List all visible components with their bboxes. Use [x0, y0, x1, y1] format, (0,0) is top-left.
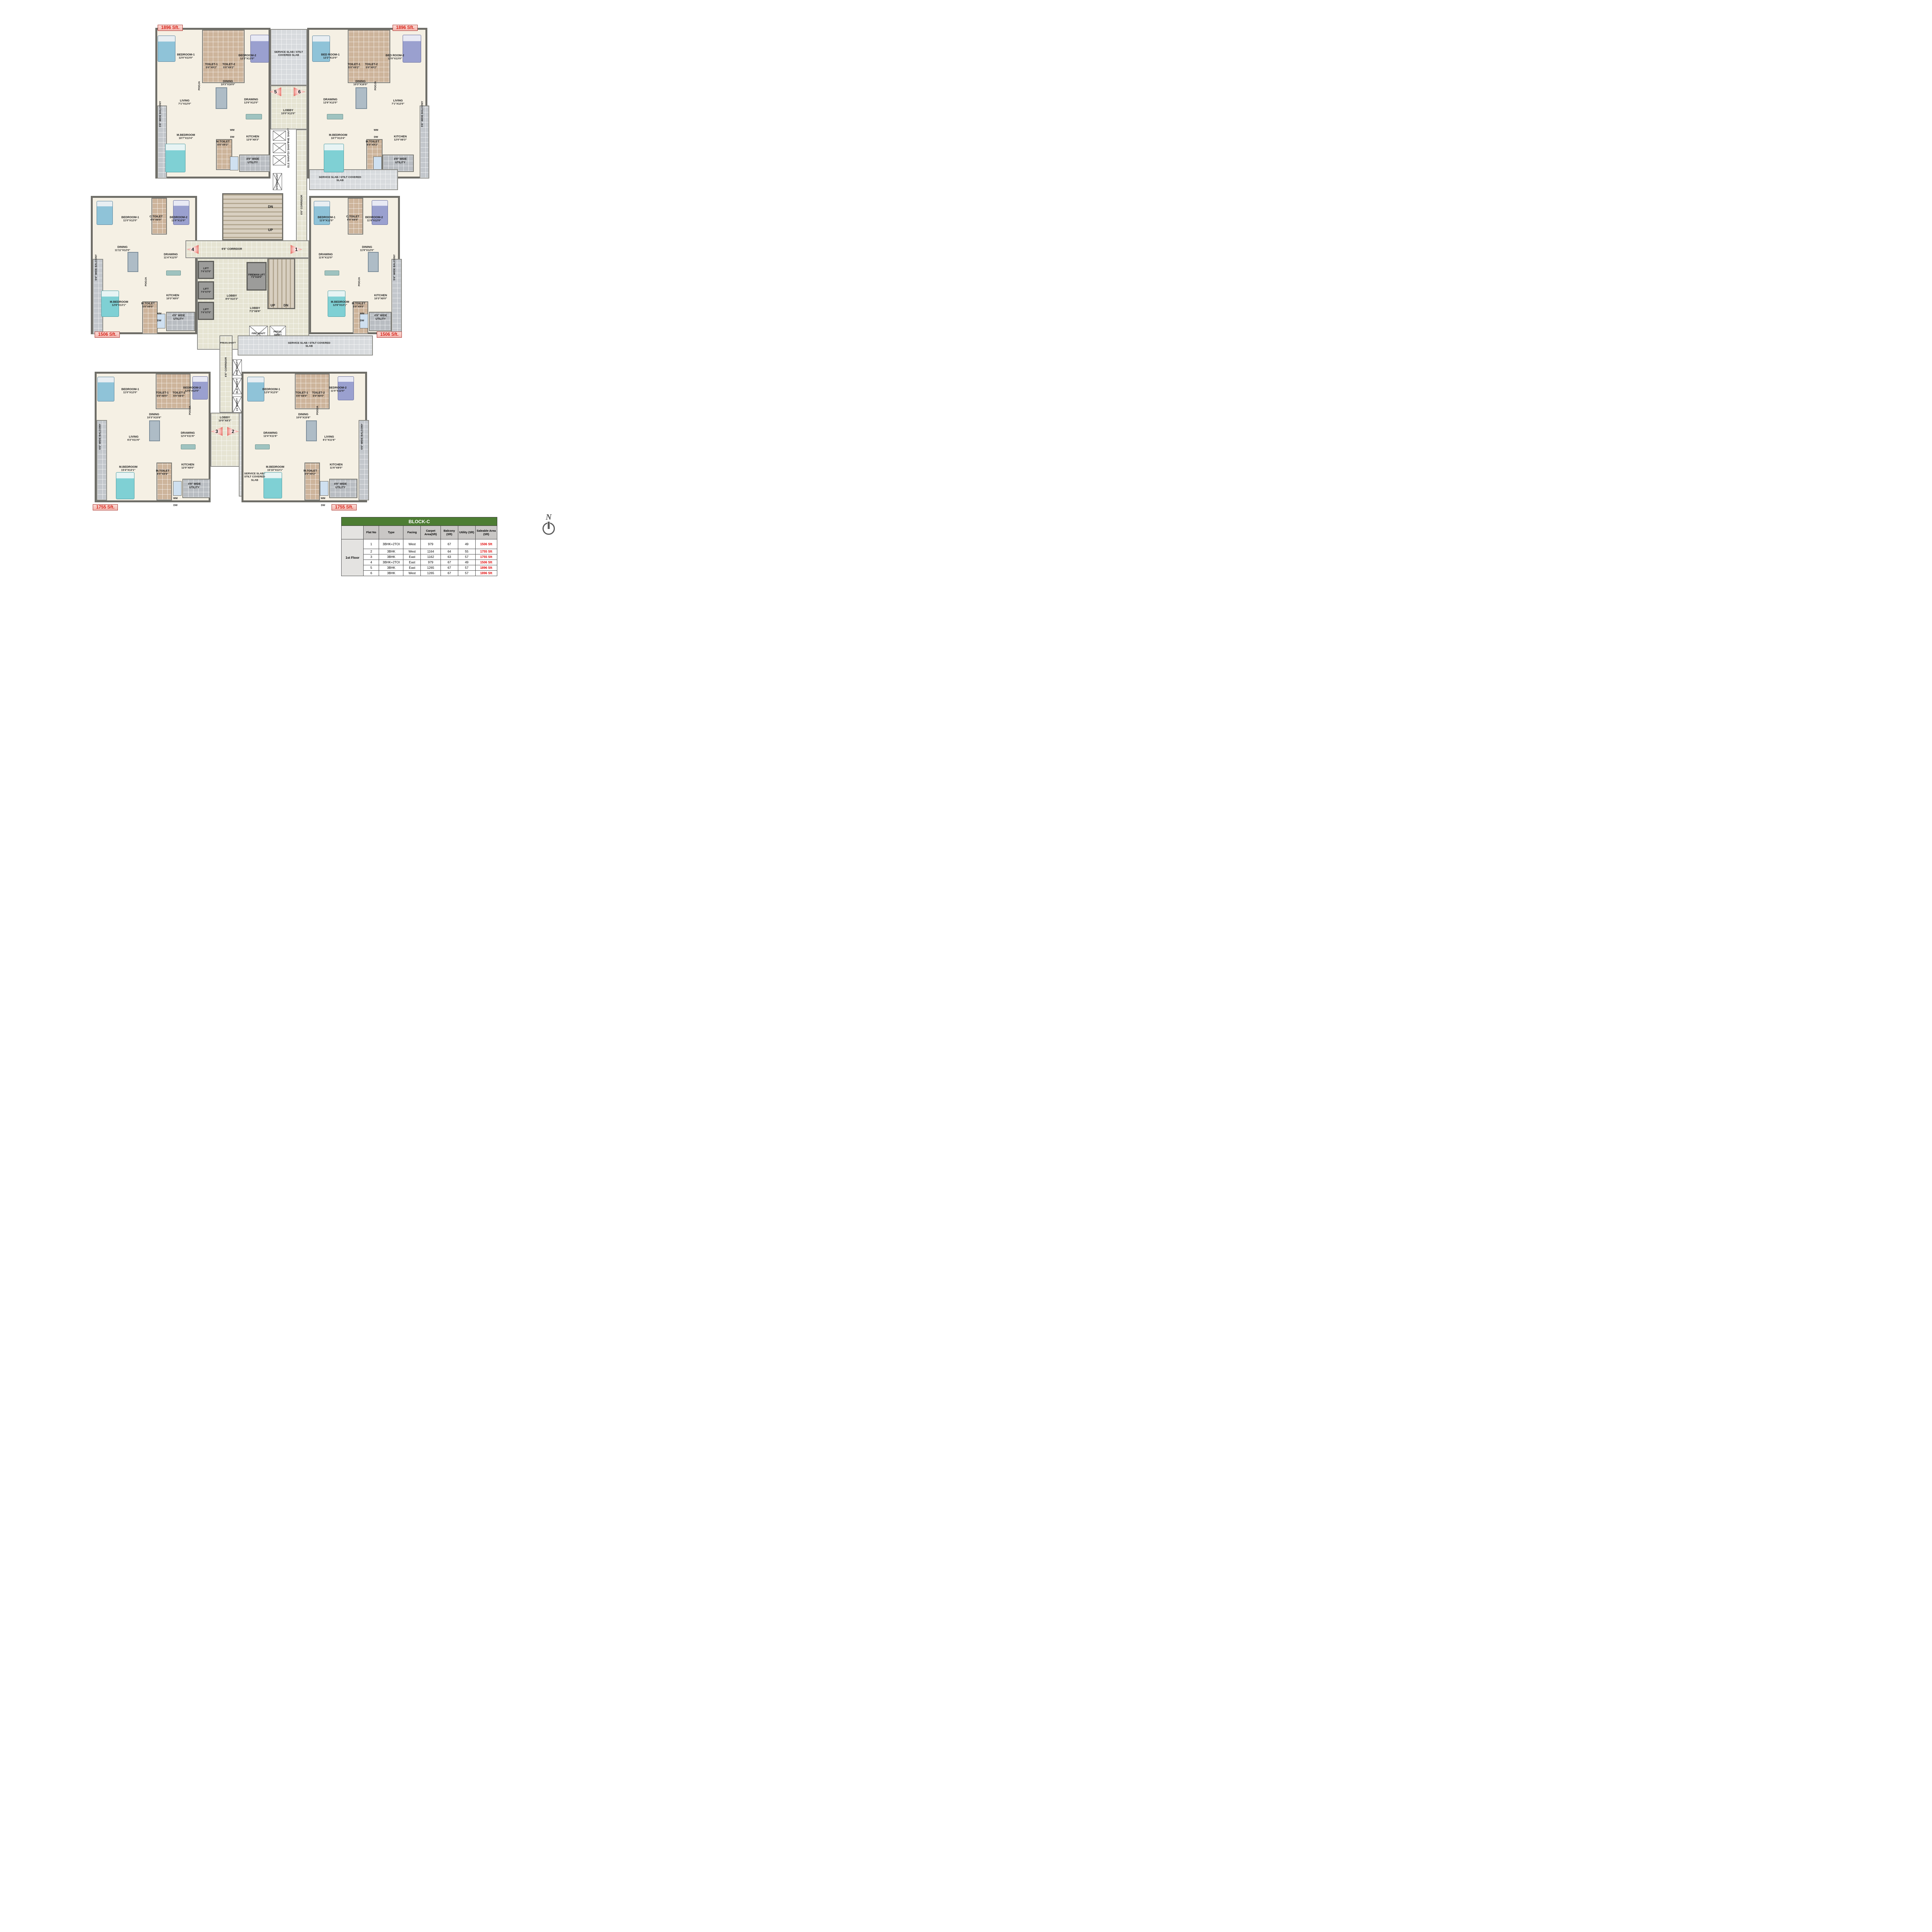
cell-balcony: 67 [440, 571, 458, 576]
room-name: KITCHEN [246, 135, 259, 139]
floor-plan-canvas: 1896 Sft. BEDROOM-112'0"X13'0" TOILET-15… [0, 0, 580, 580]
block-c-table: BLOCK-C Flat No Type Facing Carpet Area(… [341, 517, 497, 576]
wm-dw-box [230, 156, 238, 170]
floor-label: 1st Floor [342, 539, 364, 576]
press-shaft-left-label: PRESS.SHAFT [220, 342, 236, 344]
mr-dining-label: DINING11'9"X12'0" [360, 246, 374, 252]
room-name: M.TOILET [366, 140, 379, 144]
tl-toilet2-label: TOILET-25'0"X9'2" [223, 63, 235, 70]
bl-dw-label: DW [173, 504, 178, 507]
room-dims: 16'7"X13'4" [329, 137, 347, 140]
tr-mtoilet-label: M.TOILET6'0"X9'2" [366, 140, 379, 147]
room-dims: 8'0"X22'3" [225, 298, 238, 301]
room-dims: 11'0"X12'0" [365, 219, 383, 222]
room-name: M.BEDROOM [266, 466, 284, 469]
tl-wm-label: WM [230, 129, 235, 132]
lift-3-label: LIFT7'4"X7'0" [201, 308, 211, 314]
room-name: LIFT [201, 287, 211, 291]
room-name: BEDROOM-2 [170, 216, 187, 219]
room-name: C.TOILET [346, 215, 359, 219]
cell-type: 3BHK [379, 571, 403, 576]
cell-carpet: 1162 [421, 554, 440, 560]
corridor-bottom-label: 6'6" CORRIDOR [225, 357, 228, 377]
stp-exhaust-label: STP.EXHAUST [276, 173, 279, 189]
room-name: TOILET-2 [365, 63, 378, 66]
press-shaft2-label: PRESS. SHAFT [271, 331, 284, 337]
bl-kitchen-label: KITCHEN12'0"X8'0" [181, 463, 194, 470]
stairs-lower [267, 258, 295, 309]
room-dims: 12'4"X11'6" [264, 435, 278, 438]
service-slab-top-label: SERVICE SLAB / STILT COVERED SLAB [274, 51, 304, 58]
corridor-vertical-label: 6'6" CORRIDOR [301, 195, 303, 214]
room-name: LOBBY [225, 294, 238, 298]
fireman-lift-label: FIREMAN LIFT7'2"X10'0" [248, 274, 265, 279]
flat-number: 5 [274, 89, 277, 94]
ml-mbedroom-label: M.BEDROOM12'8"X13'1" [110, 301, 128, 307]
room-name: BED ROOM-1 [321, 53, 340, 57]
bl-living-label: LIVING6'2"X11'6" [128, 435, 140, 442]
room-name: DINING [296, 413, 311, 417]
room-name: M.BEDROOM [110, 301, 128, 304]
cell-saleable: 1755 Sft [475, 549, 497, 554]
lobby-bottom-label: LOBBY10'0"X8'3" [218, 416, 231, 423]
room-name: C.TOILET [150, 215, 163, 219]
tl-kitchen-label: KITCHEN12'0"X8'3" [246, 135, 259, 142]
tr-toilet1-label: TOILET-15'0"X9'2" [348, 63, 361, 70]
cell-saleable: 1755 Sft [475, 554, 497, 560]
room-dims: 10'0"X8'3" [218, 419, 231, 422]
lift-1-label: LIFT7'4"X7'0" [201, 267, 211, 273]
flat-marker-2: 2 [227, 427, 239, 436]
room-dims: 12'0"X12'0" [183, 389, 201, 393]
ml-bedroom2-label: BEDROOM-211'0"X12'0" [170, 216, 187, 223]
ele-shaft-box [273, 155, 286, 165]
service-slab-midright-label: SERVICE SLAB / STILT COVERED SLAB [317, 176, 363, 183]
mr-dw-label: DW [360, 320, 364, 322]
tl-mbedroom-label: M.BEDROOM16'7"X13'4" [177, 134, 195, 140]
room-name: BEDROOM-2 [183, 386, 201, 390]
col-facing: Facing [403, 526, 421, 539]
room-name: M.TOILET [352, 302, 366, 306]
area-badge-bottom-right: 1755 Sft. [332, 504, 357, 510]
room-name: DRAWING [319, 253, 333, 257]
cell-saleable: 1506 Sft [475, 539, 497, 549]
bed-icon [97, 377, 114, 401]
cell-flat: 2 [364, 549, 379, 554]
room-dims: 12'2"X13'0" [321, 56, 340, 60]
room-dims: 7'4"X7'0" [201, 291, 211, 293]
table-row: 4 3BHK+2TOI East 979 67 49 1506 Sft [342, 560, 497, 565]
room-name: KITCHEN [330, 463, 342, 467]
tr-balcony-label: 5'6" WIDE BALCONY [421, 101, 424, 127]
room-dims: 12'8"X13'1" [331, 304, 349, 307]
tr-mbedroom-label: M.BEDROOM16'7"X13'4" [329, 134, 347, 140]
room-name: M.BEDROOM [331, 301, 349, 304]
lift-2-label: LIFT7'4"X7'0" [201, 287, 211, 293]
cell-saleable: 1896 Sft [475, 571, 497, 576]
room-dims: 12'0"X13'0" [386, 57, 404, 60]
room-name: BEDROOM-1 [177, 53, 195, 57]
bl-bedroom1-label: BEDROOM-111'0"X12'0" [121, 388, 139, 395]
room-name: KITCHEN [181, 463, 194, 467]
room-dims: 6'0"X9'2" [304, 473, 317, 476]
br-utility-label: 4'9" WIDE UTILITY [330, 483, 350, 490]
room-dims: 11'0"X12'0" [318, 219, 335, 222]
br-toilet1-label: TOILET-15'0"X8'0" [296, 391, 308, 398]
balcony-area [359, 420, 369, 500]
tl-balcony-label: 5'6" WIDE BALCONY [159, 101, 162, 127]
cell-flat: 1 [364, 539, 379, 549]
room-dims: 11'0"X12'0" [121, 219, 139, 222]
room-dims: 15'4"X13'1" [119, 469, 138, 472]
ml-drawing-label: DRAWING11'4"X12'0" [164, 253, 178, 260]
stairs-up-label: UP [268, 228, 273, 232]
room-dims: 5'0"X8'0" [312, 395, 325, 398]
ml-kitchen-label: KITCHEN10'3"X8'0" [166, 294, 179, 301]
stairs-lower-up-label: UP [270, 303, 275, 307]
br-toilet2-label: TOILET-25'0"X8'0" [312, 391, 325, 398]
room-dims: 12'0"X8'3" [394, 138, 406, 141]
corridor-vertical-top [296, 129, 307, 257]
br-bedroom1-label: BEDROOM-112'0"X12'0" [262, 388, 280, 395]
col-balcony: Balcony (Sft) [440, 526, 458, 539]
tr-pooja-label: POOJA [374, 81, 377, 90]
col-floor [342, 526, 364, 539]
bl-drawing-label: DRAWING12'4"X11'6" [181, 432, 195, 438]
sofa-icon [325, 270, 339, 276]
dining-table-icon [306, 420, 317, 441]
table-row: 5 3BHK East 1265 67 57 1896 Sft [342, 565, 497, 571]
mr-wm-label: WM [360, 313, 364, 315]
room-name: LOBBY [249, 307, 260, 310]
room-dims: 12'0"X8'3" [246, 138, 259, 141]
flat-number: 2 [232, 429, 235, 434]
flat-number: 1 [295, 247, 298, 252]
room-name: DINING [147, 413, 162, 417]
room-dims: 10'3"X8'0" [166, 297, 179, 300]
ml-ctoilet-label: C.TOILET6'0"X8'0" [150, 215, 163, 222]
compass-icon [543, 522, 555, 535]
room-dims: 6'0"X8'0" [346, 218, 359, 221]
dining-table-icon [368, 252, 379, 272]
room-name: DINING [360, 246, 374, 249]
lv-shaft-lower-label: LV SHAFT [236, 398, 239, 411]
sofa-icon [255, 444, 270, 449]
col-carpet: Carpet Area(Sft) [421, 526, 440, 539]
room-name: KITCHEN [394, 135, 406, 139]
room-dims: 6'1"X11'6" [323, 439, 336, 442]
bl-balcony-label: 5'6" WIDE BALCONY [99, 423, 102, 450]
br-dining-label: DINING10'0"X15'8" [296, 413, 311, 420]
bed-icon [403, 35, 421, 63]
room-name: TOILET-2 [223, 63, 235, 66]
room-dims: 10'3"X16'0" [354, 83, 368, 86]
room-dims: 10'0"X15'8" [296, 416, 311, 419]
room-name: BEDROOM-2 [238, 54, 256, 58]
flat-marker-6: 6 [294, 87, 305, 96]
room-dims: 12'0"X13'0" [177, 56, 195, 60]
br-balcony-label: 5'6" WIDE BALCONY [361, 423, 364, 450]
dining-table-icon [149, 420, 160, 441]
lobby-top-label: LOBBY10'0"X12'0" [281, 109, 296, 116]
cell-balcony: 67 [440, 560, 458, 565]
balcony-area [97, 420, 107, 500]
room-name: BEDROOM-2 [329, 386, 347, 390]
room-dims: 12'6"X12'0" [244, 101, 259, 104]
wm-dw-box [173, 481, 182, 496]
mr-drawing-label: DRAWING11'6"X12'0" [319, 253, 333, 260]
ml-balcony-label: 5'6" WIDE BALCONY [95, 254, 98, 281]
room-name: LIVING [128, 435, 140, 439]
room-name: LIFT [201, 308, 211, 311]
col-utility: Utility (Sft) [458, 526, 476, 539]
phe-shaft-lower-label: PHE SHAFT [236, 360, 239, 375]
north-indicator: N [540, 513, 557, 535]
cell-saleable: 1506 Sft [475, 560, 497, 565]
cell-carpet: 979 [421, 560, 440, 565]
room-name: TOILET-1 [205, 63, 218, 66]
bl-wm-label: WM [173, 497, 178, 500]
dining-table-icon [128, 252, 138, 272]
mr-utility-label: 4'9" WIDE UTILITY [371, 314, 391, 321]
room-name: LIFT [201, 267, 211, 270]
flat-number: 4 [192, 247, 194, 252]
room-name: BEDROOM-1 [318, 216, 335, 219]
wm-dw-box [320, 481, 328, 496]
corridor-horizontal-label: 6'6" CORRIDOR [222, 248, 242, 251]
room-name: BEDROOM-1 [121, 216, 139, 219]
cell-carpet: 1164 [421, 549, 440, 554]
room-name: DRAWING [164, 253, 178, 257]
room-name: DINING [115, 246, 130, 249]
room-name: LIVING [323, 435, 336, 439]
flat-marker-3: 3 [211, 427, 223, 436]
room-name: BEDROOM-1 [121, 388, 139, 391]
room-dims: 6'2"X11'6" [128, 439, 140, 442]
col-flat-no: Flat No [364, 526, 379, 539]
room-dims: 6'0"X9'2" [366, 143, 379, 146]
room-dims: 7'2"X10'0" [248, 276, 265, 279]
tr-utility-label: 4'9" WIDE UTILITY [390, 158, 410, 165]
north-label: N [540, 513, 557, 521]
br-dw-label: DW [321, 504, 325, 507]
room-name: M.TOILET [216, 140, 230, 144]
br-pooja-label: POOJA [316, 406, 319, 415]
tl-utility-label: 4'9" WIDE UTILITY [243, 158, 263, 165]
room-dims: 7'4"X7'0" [201, 270, 211, 273]
room-dims: 5'0"X8'0" [173, 395, 185, 398]
br-bedroom2-label: BEDROOM-211'0"X12'0" [329, 386, 347, 393]
room-name: LIVING [178, 99, 191, 103]
room-name: DRAWING [264, 432, 278, 435]
stairs-dn-label: DN [268, 205, 273, 209]
room-dims: 7'1"X12'0" [391, 102, 404, 105]
room-name: TOILET-1 [156, 391, 169, 395]
room-name: TOILET-1 [348, 63, 361, 66]
sofa-icon [246, 114, 262, 119]
room-dims: 5'0"X9'2" [348, 66, 361, 69]
tl-living-label: LIVING7'1"X12'0" [178, 99, 191, 106]
tr-kitchen-label: KITCHEN12'0"X8'3" [394, 135, 406, 142]
cell-carpet: 1265 [421, 571, 440, 576]
br-drawing-label: DRAWING12'4"X11'6" [264, 432, 278, 438]
bl-utility-label: 4'9" WIDE UTILITY [184, 483, 204, 490]
mr-ctoilet-label: C.TOILET6'0"X8'0" [346, 215, 359, 222]
table-row: 1st Floor 1 3BHK+2TOI West 979 67 49 150… [342, 539, 497, 549]
cell-utility: 57 [458, 554, 476, 560]
mr-pooja-label: POOJA [358, 277, 361, 286]
room-name: M.BEDROOM [177, 134, 195, 137]
col-saleable: Saleable Area (Sft) [475, 526, 497, 539]
cell-utility: 57 [458, 571, 476, 576]
tr-dw-label: DW [374, 136, 378, 139]
lobby-small-label: LOBBY7'2"X8'9" [249, 307, 260, 313]
room-dims: 10'3"X8'0" [374, 297, 387, 300]
bed-icon [165, 144, 185, 172]
br-wm-label: WM [321, 497, 325, 500]
room-dims: 12'6"X12'0" [323, 101, 338, 104]
room-dims: 7'4"X7'0" [201, 311, 211, 314]
service-slab-center-label: SERVICE SLAB / STILT COVERED SLAB [284, 342, 334, 349]
room-dims: 12'0"X8'0" [181, 466, 194, 469]
lobby-main-label: LOBBY8'0"X22'3" [225, 294, 238, 301]
tl-dw-label: DW [230, 136, 235, 139]
ml-bedroom1-label: BEDROOM-111'0"X12'0" [121, 216, 139, 223]
room-dims: 6'0"X8'0" [150, 218, 163, 221]
compass-needle [548, 521, 550, 529]
room-name: BEDROOM-1 [262, 388, 280, 391]
stairs-lower-dn-label: DN [284, 303, 288, 307]
ml-dining-label: DINING11'11"X12'0" [115, 246, 130, 252]
bl-dining-label: DINING10'3"X15'8" [147, 413, 162, 420]
bl-mbedroom-label: M.BEDROOM15'4"X13'1" [119, 466, 138, 472]
table-row: 2 3BHK West 1164 64 55 1755 Sft [342, 549, 497, 554]
table-row: 6 3BHK West 1265 67 57 1896 Sft [342, 571, 497, 576]
room-name: FIREMAN LIFT [248, 274, 265, 276]
room-name: DINING [354, 80, 368, 83]
cell-balcony: 63 [440, 554, 458, 560]
ml-utility-label: 4'9" WIDE UTILITY [168, 314, 189, 321]
flat-marker-5: 5 [270, 87, 281, 96]
room-dims: 11'11"X12'0" [115, 249, 130, 252]
cell-facing: West [403, 539, 421, 549]
room-dims: 5'0"X9'0" [141, 305, 155, 308]
cell-carpet: 979 [421, 539, 440, 549]
room-name: DINING [221, 80, 235, 83]
cell-type: 3BHK [379, 565, 403, 571]
room-name: LIVING [391, 99, 404, 103]
sofa-icon [327, 114, 343, 119]
cell-flat: 4 [364, 560, 379, 565]
area-badge-middle-right: 1506 Sft. [377, 332, 402, 338]
toilet-block [348, 30, 390, 83]
cell-utility: 55 [458, 549, 476, 554]
room-dims: 5'0"X9'0" [352, 305, 366, 308]
cell-facing: East [403, 560, 421, 565]
room-name: BED ROOM-2 [386, 54, 404, 58]
cell-facing: East [403, 554, 421, 560]
room-dims: 7'1"X12'0" [178, 102, 191, 105]
cell-facing: West [403, 571, 421, 576]
room-dims: 5'0"X9'2" [365, 66, 378, 69]
sofa-icon [166, 270, 181, 276]
flat-marker-4: 4 [187, 245, 199, 254]
br-mtoilet-label: M.TOILET6'0"X9'2" [304, 469, 317, 476]
cell-type: 3BHK+2TOI [379, 539, 403, 549]
cell-flat: 3 [364, 554, 379, 560]
bed-icon [158, 36, 175, 62]
area-badge-middle-left: 1506 Sft. [95, 332, 120, 338]
table-title: BLOCK-C [342, 517, 497, 526]
cell-utility: 49 [458, 539, 476, 549]
cell-flat: 5 [364, 565, 379, 571]
room-name: LOBBY [281, 109, 296, 112]
room-dims: 11'6"X8'0" [330, 466, 342, 469]
room-name: TOILET-2 [312, 391, 325, 395]
room-dims: 6'0"X8'8" [156, 473, 170, 476]
room-dims: 15'10"X13'1" [266, 469, 284, 472]
tr-drawing-label: DRAWING12'6"X12'0" [323, 98, 338, 105]
room-name: DRAWING [181, 432, 195, 435]
room-dims: 5'0"X8'0" [156, 395, 169, 398]
ml-wm-label: WM [157, 313, 162, 315]
cell-utility: 57 [458, 565, 476, 571]
room-dims: 12'2"X13'0" [238, 57, 256, 60]
tr-living-label: LIVING7'1"X12'0" [391, 99, 404, 106]
room-dims: 16'7"X13'4" [177, 137, 195, 140]
cell-saleable: 1896 Sft [475, 565, 497, 571]
tl-drawing-label: DRAWING12'6"X12'0" [244, 98, 259, 105]
mr-mbedroom-label: M.BEDROOM12'8"X13'1" [331, 301, 349, 307]
cell-facing: West [403, 549, 421, 554]
room-name: DRAWING [244, 98, 259, 102]
room-dims: 10'3"X16'0" [221, 83, 235, 86]
room-name: TOILET-1 [296, 391, 308, 395]
col-type: Type [379, 526, 403, 539]
phe-shaft-label: PHE SHAFT [287, 128, 290, 143]
room-dims: 10'0"X12'0" [281, 112, 296, 115]
cell-type: 3BHK [379, 549, 403, 554]
lv-shaft-box [273, 143, 286, 153]
bl-pooja-label: POOJA [189, 406, 192, 415]
room-dims: 11'6"X12'0" [319, 256, 333, 259]
wm-dw-box [373, 156, 382, 170]
room-dims: 12'8"X13'1" [110, 304, 128, 307]
room-dims: 11'0"X12'0" [329, 389, 347, 393]
room-dims: 5'0"X8'0" [296, 395, 308, 398]
room-dims: 5'0"X9'2" [205, 66, 218, 69]
tl-bedroom1-label: BEDROOM-112'0"X13'0" [177, 53, 195, 60]
room-dims: 6'0"X9'2" [216, 143, 230, 146]
cell-balcony: 67 [440, 539, 458, 549]
room-name: BEDROOM-2 [365, 216, 383, 219]
bl-mtoilet-label: M.TOILET6'0"X8'8" [156, 469, 170, 476]
mtoilet-block [304, 463, 320, 500]
cell-type: 3BHK [379, 554, 403, 560]
room-name: KITCHEN [166, 294, 179, 298]
cell-flat: 6 [364, 571, 379, 576]
area-badge-top-left: 1896 Sft. [158, 25, 183, 31]
tl-pooja-label: POOJA [198, 81, 201, 90]
room-dims: 11'4"X12'0" [164, 256, 178, 259]
table-row: 3 3BHK East 1162 63 57 1755 Sft [342, 554, 497, 560]
ele-shaft-label: ELE SHAFT [287, 153, 290, 168]
ml-pooja-label: POOJA [145, 277, 148, 286]
cell-type: 3BHK+2TOI [379, 560, 403, 565]
tr-toilet2-label: TOILET-25'0"X9'2" [365, 63, 378, 70]
tr-bedroom2-label: BED ROOM-212'0"X13'0" [386, 54, 404, 61]
bed-icon [116, 472, 134, 499]
